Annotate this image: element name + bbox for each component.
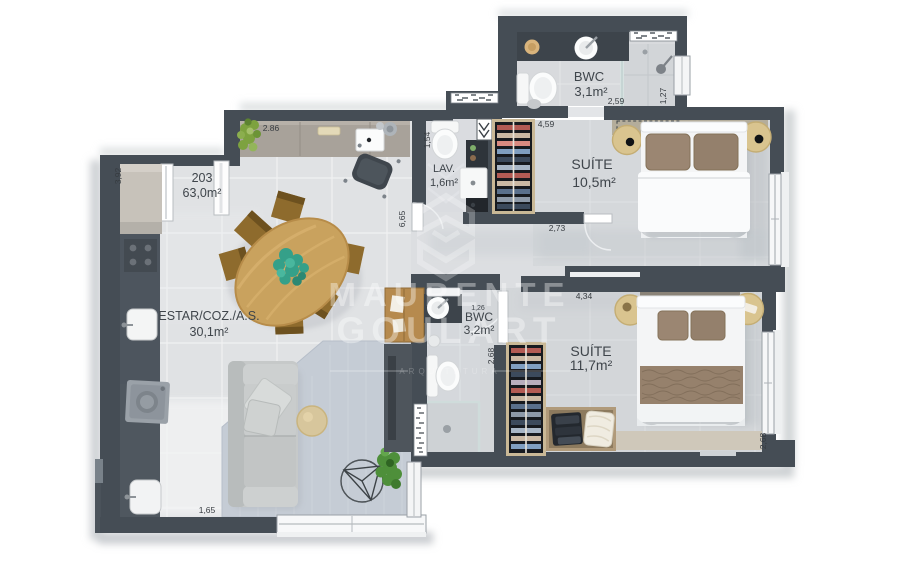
svg-text:6,65: 6,65: [397, 210, 407, 227]
svg-text:ARQUITETURA: ARQUITETURA: [399, 367, 500, 376]
svg-text:GOULART: GOULART: [337, 310, 562, 351]
svg-text:4,59: 4,59: [538, 119, 555, 129]
svg-text:2,68: 2,68: [758, 432, 768, 449]
svg-text:10,5m²: 10,5m²: [572, 174, 616, 190]
svg-text:4,34: 4,34: [576, 291, 593, 301]
svg-text:63,0m²: 63,0m²: [183, 186, 222, 200]
svg-text:2,59: 2,59: [608, 96, 625, 106]
svg-text:1,27: 1,27: [658, 87, 668, 104]
svg-text:3,92: 3,92: [113, 167, 123, 184]
svg-text:3,2m²: 3,2m²: [464, 323, 495, 337]
svg-text:1,65: 1,65: [199, 505, 216, 515]
svg-text:1,6m²: 1,6m²: [430, 177, 458, 189]
svg-text:11,7m²: 11,7m²: [570, 357, 613, 373]
svg-text:2,73: 2,73: [549, 223, 566, 233]
svg-text:LAV.: LAV.: [433, 163, 455, 175]
svg-text:30,1m²: 30,1m²: [190, 325, 229, 339]
svg-text:ESTAR/COZ./A.S.: ESTAR/COZ./A.S.: [158, 309, 259, 323]
svg-text:203: 203: [192, 171, 213, 185]
svg-text:SUÍTE: SUÍTE: [571, 156, 612, 172]
svg-text:3,1m²: 3,1m²: [574, 84, 608, 99]
svg-text:BWC: BWC: [465, 310, 493, 324]
svg-text:BWC: BWC: [574, 69, 604, 84]
svg-text:2.86: 2.86: [263, 123, 280, 133]
svg-text:1,54: 1,54: [422, 131, 432, 148]
svg-text:MAURENTE: MAURENTE: [329, 276, 572, 313]
svg-text:2,68: 2,68: [486, 347, 496, 364]
